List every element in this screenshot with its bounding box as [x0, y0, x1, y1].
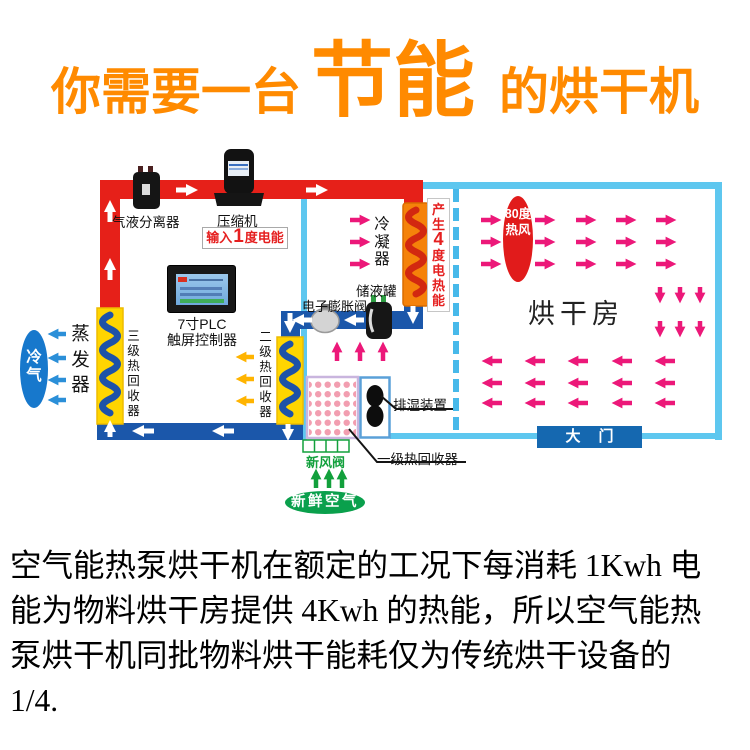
stage3-heat-recovery-coil [97, 308, 123, 424]
compressor [214, 149, 264, 206]
input-energy-post: 度电能 [245, 229, 284, 247]
stage3-recovery-label: 三级热回收器 [126, 329, 141, 419]
plc-screen-chip [178, 277, 187, 282]
cold-air-badge: 冷气 [20, 330, 48, 408]
plc-screen [176, 274, 228, 305]
door-label: 大门 [537, 426, 642, 448]
hot-air-badge: 80度热风 [503, 196, 533, 282]
input-energy-pre: 输入 [206, 229, 232, 247]
description-paragraph: 空气能热泵烘干机在额定的工况下每消耗 1Kwh 电能为物料烘干房提供 4Kwh … [10, 543, 712, 723]
plc-controller [167, 265, 236, 313]
stage2-heat-recovery-coil [277, 337, 303, 424]
plc-label-line1: 7寸PLC [152, 316, 252, 332]
output-energy-post: 度电热能 [432, 248, 445, 308]
fresh-air-valve [303, 440, 349, 452]
moisture-exhaust-device [361, 378, 390, 438]
fresh-air-valve-label: 新风阀 [306, 452, 345, 471]
separator-label: 气液分离器 [112, 211, 180, 231]
output-energy-value: 4 [433, 229, 443, 249]
condenser-label: 冷凝器 [372, 216, 392, 269]
drying-room-label: 烘干房 [528, 292, 624, 331]
infographic-root: 你需要一台 节能 的烘干机 [0, 0, 750, 750]
stage2-recovery-label: 二级热回收器 [258, 330, 273, 420]
stage1-recovery-label: 一级热回收器 [377, 448, 458, 468]
liquid-storage-tank [366, 295, 392, 339]
condenser-coil [403, 203, 429, 306]
exhaust-label: 排湿装置 [393, 394, 447, 414]
output-energy-pre: 产生 [432, 202, 445, 232]
evaporator-label: 蒸发器 [70, 321, 91, 398]
gas-liquid-separator [133, 166, 160, 209]
fresh-air-badge: 新鲜空气 [285, 491, 365, 514]
input-energy-value: 1 [233, 228, 244, 246]
plc-label: 7寸PLC 触屏控制器 [152, 316, 252, 348]
input-energy-badge: 输入1度电能 [202, 227, 288, 249]
valve-label: 电子膨胀阀 [302, 296, 367, 315]
stage1-heat-recovery-box [307, 377, 358, 438]
plc-label-line2: 触屏控制器 [152, 332, 252, 348]
output-energy-badge: 产生4度电热能 [427, 198, 450, 312]
